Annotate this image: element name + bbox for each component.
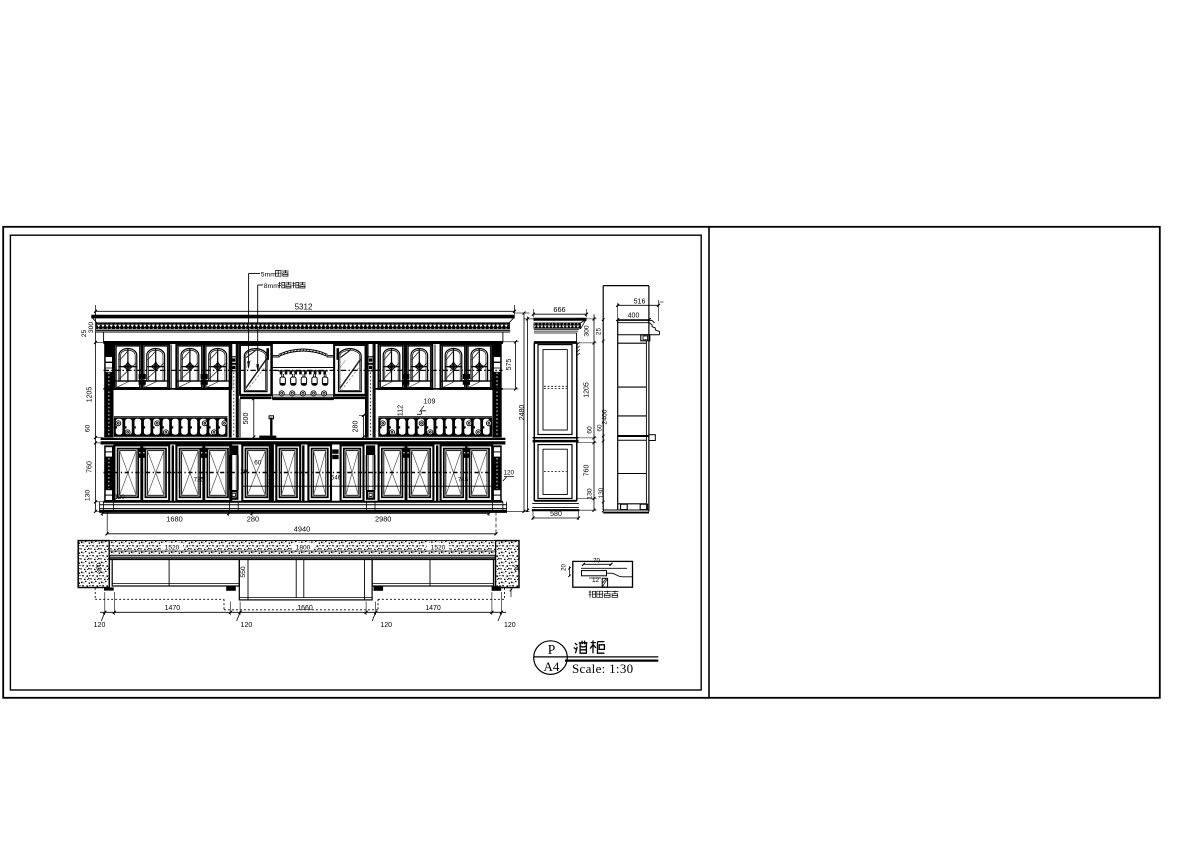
svg-text:60: 60 [85, 425, 92, 433]
svg-text:546: 546 [331, 476, 342, 482]
svg-text:2400: 2400 [602, 409, 609, 424]
svg-text:500: 500 [243, 413, 250, 425]
svg-text:60: 60 [587, 426, 594, 434]
svg-text:70: 70 [593, 558, 601, 565]
svg-text:1470: 1470 [425, 605, 441, 612]
svg-text:580: 580 [550, 511, 562, 518]
svg-text:25: 25 [596, 328, 603, 336]
svg-text:745: 745 [458, 477, 469, 484]
svg-text:516: 516 [269, 475, 275, 485]
svg-text:60: 60 [254, 460, 262, 467]
svg-text:1660: 1660 [297, 605, 313, 612]
svg-text:P: P [548, 642, 556, 657]
svg-text:300: 300 [88, 322, 95, 334]
svg-text:2480: 2480 [519, 405, 526, 421]
svg-text:112: 112 [398, 405, 405, 416]
svg-text:1205: 1205 [583, 382, 590, 398]
svg-text:20: 20 [240, 469, 248, 476]
svg-text:120: 120 [380, 622, 392, 629]
svg-text:120: 120 [94, 622, 106, 629]
svg-text:1520: 1520 [431, 544, 446, 551]
svg-text:109: 109 [424, 399, 436, 406]
svg-text:8mm: 8mm [264, 283, 279, 290]
svg-text:1470: 1470 [165, 605, 181, 612]
svg-text:300: 300 [96, 562, 103, 573]
svg-text:280: 280 [247, 515, 259, 524]
svg-text:2980: 2980 [375, 515, 391, 524]
svg-text:760: 760 [583, 465, 590, 477]
svg-text:120: 120 [503, 470, 514, 477]
svg-text:130: 130 [85, 490, 92, 502]
svg-text:30: 30 [515, 564, 521, 571]
svg-text:130: 130 [587, 488, 594, 500]
svg-text:760: 760 [87, 461, 94, 473]
svg-text:550: 550 [240, 566, 247, 578]
svg-text:25: 25 [81, 330, 88, 338]
svg-text:1680: 1680 [166, 515, 182, 524]
svg-text:666: 666 [553, 305, 565, 314]
svg-text:Scale: 1:30: Scale: 1:30 [572, 661, 633, 676]
svg-text:A4: A4 [544, 659, 560, 674]
svg-text:130: 130 [598, 487, 605, 498]
svg-text:516: 516 [634, 298, 646, 305]
svg-text:120: 120 [114, 494, 125, 501]
svg-text:575: 575 [506, 359, 513, 371]
svg-text:1520: 1520 [165, 544, 180, 551]
svg-text:5312: 5312 [295, 302, 313, 311]
svg-text:735: 735 [194, 477, 205, 484]
svg-text:1800: 1800 [296, 544, 311, 551]
svg-text:1205: 1205 [87, 387, 94, 403]
svg-text:400: 400 [628, 312, 640, 319]
svg-text:300: 300 [583, 325, 590, 337]
svg-text:120: 120 [241, 622, 253, 629]
svg-text:20: 20 [562, 564, 568, 571]
svg-text:280: 280 [352, 421, 359, 433]
svg-text:4940: 4940 [294, 525, 310, 534]
svg-text:60: 60 [596, 424, 603, 432]
svg-text:120: 120 [504, 622, 516, 629]
svg-text:5mm: 5mm [261, 271, 276, 278]
